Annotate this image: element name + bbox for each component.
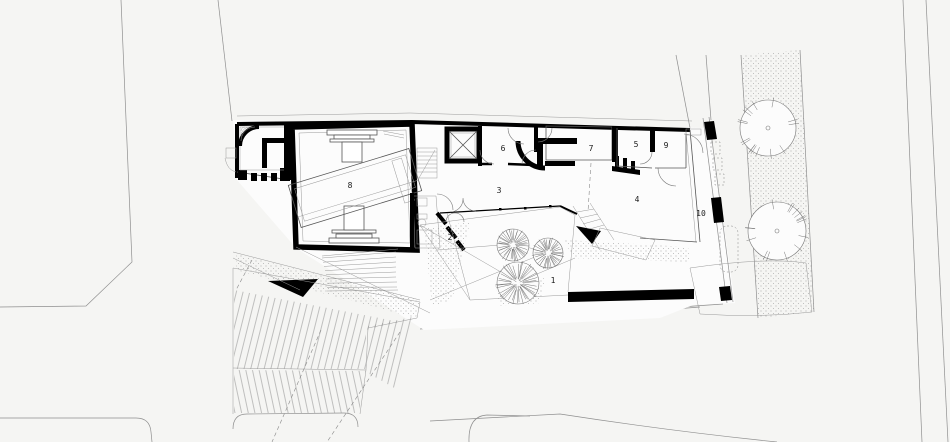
gravel-strip bbox=[741, 50, 814, 318]
black-triangle-void bbox=[268, 279, 318, 297]
site-plan-drawing: 1 2 3 4 5 6 7 8 9 10 bbox=[0, 0, 950, 442]
room-label-5: 5 bbox=[634, 140, 639, 149]
hatch-area-side bbox=[366, 316, 417, 390]
room-label-3: 3 bbox=[497, 186, 502, 195]
room-label-2: 2 bbox=[448, 233, 453, 242]
room-label-9: 9 bbox=[664, 141, 669, 150]
site-plan-canvas: 1 2 3 4 5 6 7 8 9 10 bbox=[0, 0, 950, 442]
hatch-area-lower bbox=[234, 370, 366, 413]
room-label-4: 4 bbox=[635, 195, 640, 204]
room-label-6: 6 bbox=[501, 144, 506, 153]
room-label-7: 7 bbox=[589, 144, 594, 153]
room-label-1: 1 bbox=[551, 276, 556, 285]
fence-pier bbox=[719, 286, 732, 301]
tree-icon bbox=[497, 229, 529, 262]
room-label-10: 10 bbox=[696, 209, 706, 218]
room-label-8: 8 bbox=[348, 181, 353, 190]
